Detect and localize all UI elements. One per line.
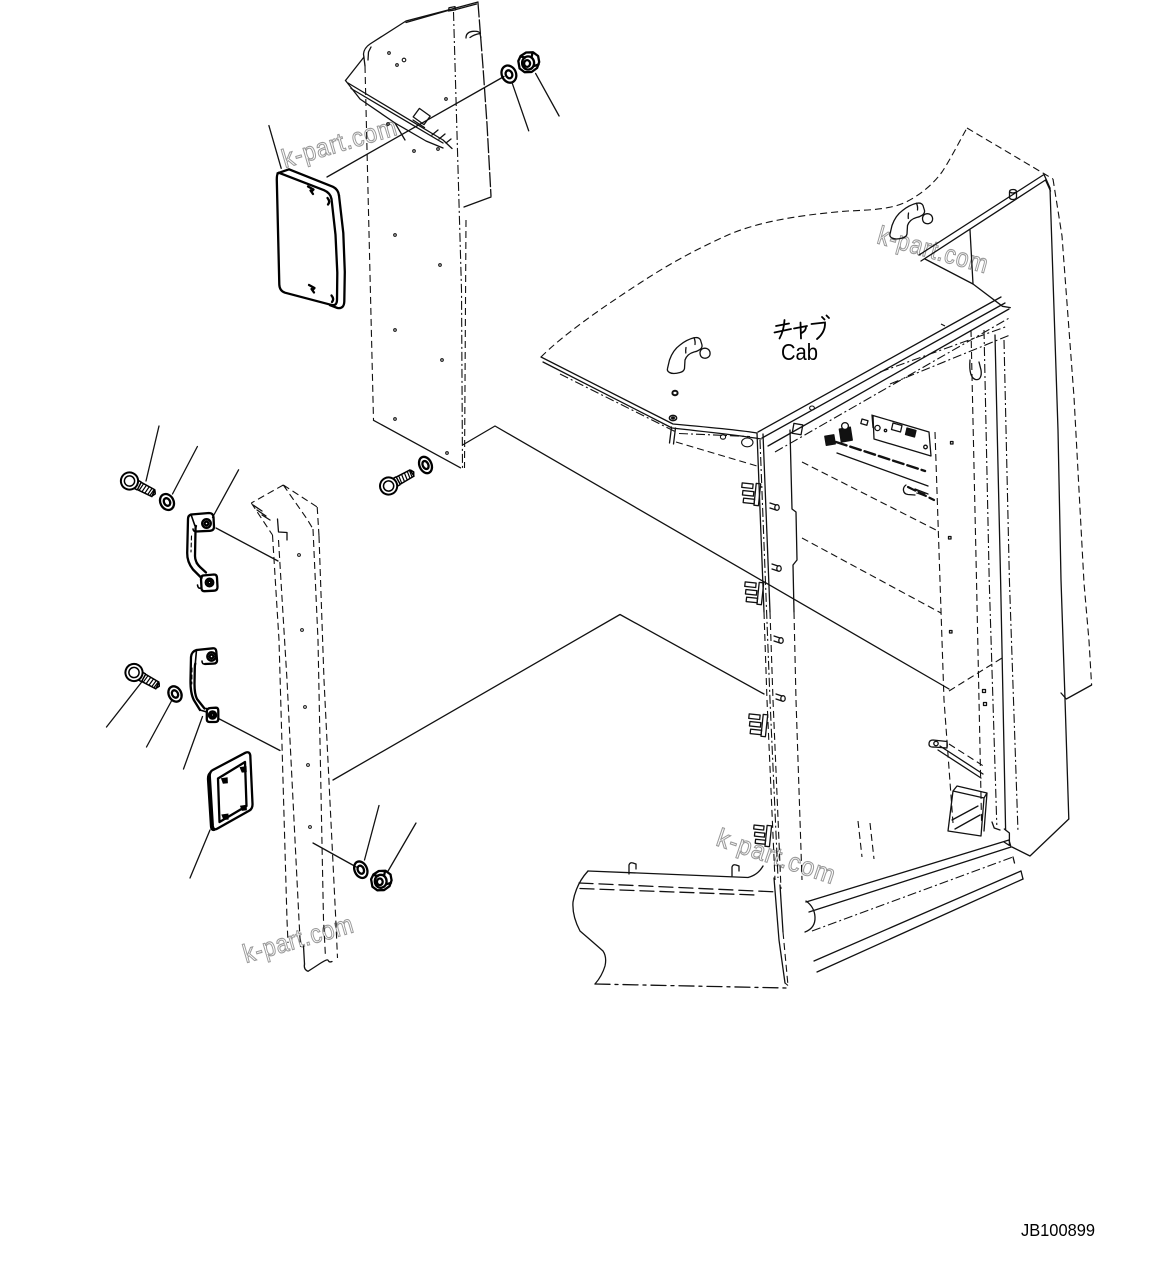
- svg-text:Cab: Cab: [781, 339, 818, 365]
- svg-text:JB100899: JB100899: [1021, 1220, 1095, 1240]
